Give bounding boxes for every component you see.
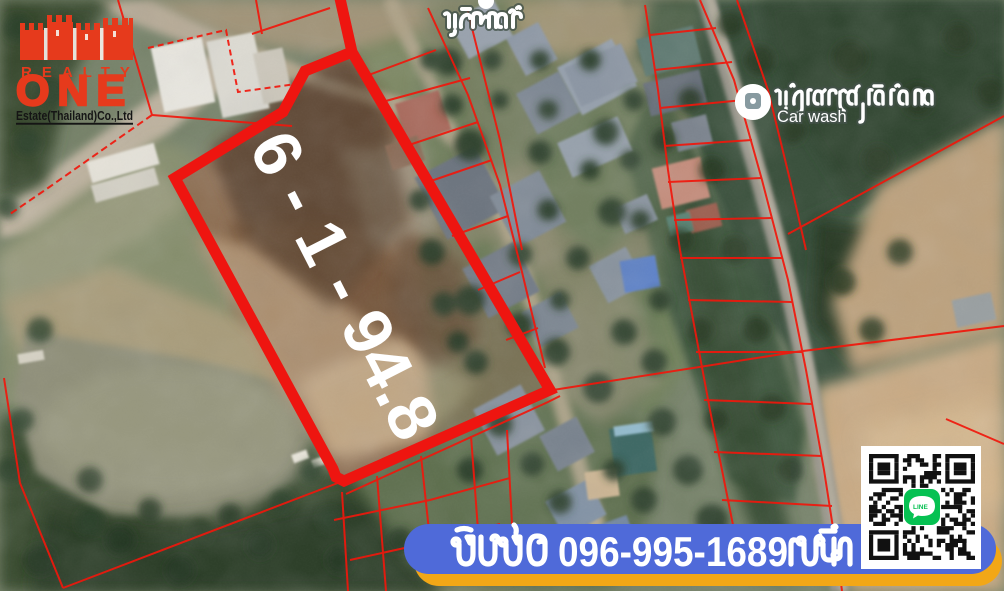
svg-text:096-995-1689: 096-995-1689: [558, 528, 788, 575]
svg-text:Car wash: Car wash: [777, 108, 847, 126]
svg-text:ONE: ONE: [16, 67, 133, 115]
svg-text:LINE: LINE: [913, 504, 928, 511]
svg-text:Estate(Thailand)Co.,Ltd: Estate(Thailand)Co.,Ltd: [16, 109, 133, 123]
